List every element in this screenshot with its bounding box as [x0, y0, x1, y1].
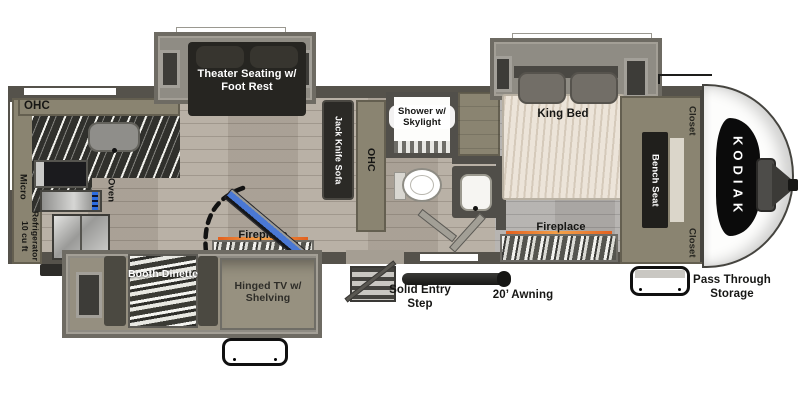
theater-seat-cushion-left: [196, 46, 244, 68]
kitchen-ohc-label: OHC: [24, 100, 64, 114]
closet-top-label: Closet: [682, 96, 702, 146]
dinette-table: [128, 254, 198, 328]
king-pillow-right: [570, 72, 618, 104]
closet-bottom-label: Closet: [682, 218, 702, 268]
micro-label: Micro: [14, 162, 32, 212]
bedroom-fireplace-console: [500, 234, 618, 262]
oven-display: [92, 192, 98, 210]
pass-through-storage-label: Pass Through Storage: [684, 274, 780, 301]
dinette-bench-left: [104, 256, 126, 326]
jack-knife-sofa-label: Jack Knife Sofa: [322, 102, 354, 198]
theater-seat-cushion-right: [250, 46, 298, 68]
entry-door-opening: [346, 250, 404, 264]
bench-seat-label: Bench Seat: [642, 134, 668, 226]
roof-marker-tick: [658, 74, 660, 84]
bedroom-fireplace-label: Fireplace: [516, 221, 606, 234]
bench-seat-cushion: [670, 138, 684, 222]
vanity-faucet: [473, 206, 478, 211]
awning-label: 20’ Awning: [487, 289, 559, 303]
awning-bar-cap: [497, 271, 511, 287]
storage-hatch-left-latch-2: [274, 358, 277, 361]
rear-stabilizer-jack: [40, 264, 64, 276]
storage-hatch-left: [222, 338, 288, 366]
pass-through-hatch-shade: [635, 270, 685, 278]
dinette-slide-window: [76, 272, 102, 318]
king-slide-window-right: [624, 58, 648, 98]
storage-hatch-left-latch-1: [233, 358, 236, 361]
king-bed-label: King Bed: [502, 108, 624, 122]
tv-swing-arc: [197, 183, 249, 257]
shower-pan: [394, 141, 450, 153]
theater-seating-label: Theater Seating w/ Foot Rest: [188, 68, 306, 94]
toilet-seat-ring: [410, 175, 434, 195]
oven-label: Oven: [102, 168, 120, 212]
microwave: [34, 160, 88, 188]
solid-entry-step-label: Solid Entry Step: [380, 284, 460, 311]
kodiak-logo: KODIAK: [716, 120, 760, 234]
refrigerator-label: 10 cu ft Refrigerator: [10, 208, 50, 264]
window-top-kitchen: [24, 88, 116, 95]
theater-slide-window-left: [160, 50, 180, 88]
dinette-bench-right: [198, 256, 218, 326]
hinged-tv-label: Hinged TV w/ Shelving: [222, 280, 314, 305]
awning-bar: [402, 273, 508, 285]
king-pillow-left: [518, 72, 566, 104]
roof-marker-line: [658, 74, 712, 76]
hitch-coupler: [788, 179, 798, 191]
booth-dinette-label: Booth Dinette: [126, 268, 200, 280]
pass-through-hatch-latch-1: [639, 288, 642, 291]
kitchen-faucet: [112, 148, 117, 153]
linen-wardrobe: [458, 92, 500, 156]
shower-label: Shower w/ Skylight: [389, 105, 455, 129]
refrigerator-label-line2: Refrigerator: [30, 211, 41, 261]
king-slide-window-left: [494, 56, 512, 92]
pass-through-hatch-latch-2: [678, 288, 681, 291]
floorplan-canvas: OHC Micro Oven 10 cu ft Refrigerator Jac…: [0, 0, 800, 400]
window-bottom-door-side: [420, 254, 478, 261]
refrigerator-label-line1: 10 cu ft: [19, 221, 30, 252]
hall-ohc-label: OHC: [356, 130, 386, 190]
